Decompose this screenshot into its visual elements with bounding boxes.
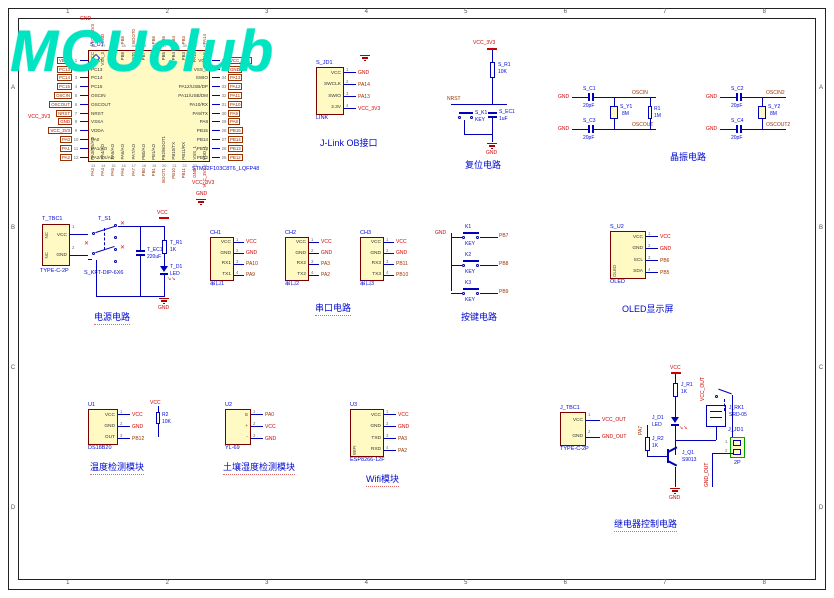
temp-body[interactable]: VCCGNDOUT xyxy=(88,409,118,445)
relay-coil-line xyxy=(710,411,722,412)
pin-name: VCC xyxy=(561,413,585,429)
net-label: VCC xyxy=(396,239,407,245)
wire xyxy=(451,104,507,105)
crystal-value: 8M xyxy=(622,111,629,117)
net-label: PB12 xyxy=(228,154,243,161)
wire xyxy=(212,130,220,131)
cap-value: 20pF xyxy=(583,103,594,109)
oled-body[interactable]: OLED VCCGNDSCLSDA xyxy=(610,231,646,279)
key-symbol[interactable] xyxy=(459,112,473,114)
pin-name: TX3 xyxy=(361,269,383,280)
key-row[interactable]: K1 KEY PB7 xyxy=(451,224,531,252)
gnd-symbol xyxy=(196,198,206,205)
wire xyxy=(234,275,244,276)
pin-number: 4 xyxy=(236,270,238,275)
wire xyxy=(594,129,656,130)
switch-lever xyxy=(95,226,114,233)
soil-title: 土壤湿度检测模块 xyxy=(223,460,295,475)
wire xyxy=(234,253,244,254)
cap-value: 20pF xyxy=(731,135,742,141)
net-label: PB12 xyxy=(132,436,144,442)
zone-label: 1 xyxy=(18,580,118,589)
resistor-designator: J_R1 xyxy=(681,382,693,388)
wire xyxy=(212,148,220,149)
wire xyxy=(675,374,676,383)
pin-number: 6 xyxy=(72,102,80,107)
wire xyxy=(118,414,130,415)
pin-name: OUT xyxy=(89,432,117,443)
wire xyxy=(251,438,263,439)
relay-title: 继电器控制电路 xyxy=(614,517,677,532)
net-label: VCC xyxy=(246,239,257,245)
resistor-value: 1K xyxy=(681,389,687,395)
pin-number: 3 xyxy=(386,433,388,438)
transistor-emitter xyxy=(668,460,678,466)
wire xyxy=(309,242,319,243)
pin-number: 1 xyxy=(311,237,313,242)
wire xyxy=(309,275,319,276)
net-label: PB5 xyxy=(660,270,669,276)
pin-name: PB10/TX xyxy=(172,142,176,160)
net-label: VCC xyxy=(265,424,276,430)
net-label: PA10 xyxy=(228,101,242,108)
resistor-symbol[interactable] xyxy=(645,437,650,451)
pin-name: PA4/AO xyxy=(101,144,105,160)
vcc-port: VCC_3V3 xyxy=(192,180,214,186)
net-label: VCC_3V3 xyxy=(48,127,72,134)
pin-name: PB0/AO xyxy=(142,144,146,160)
wire xyxy=(464,134,493,135)
cap-symbol[interactable] xyxy=(588,93,590,101)
net-label: PB8 xyxy=(499,261,508,267)
wire xyxy=(480,237,498,238)
crystal-value: 8M xyxy=(770,111,777,117)
pin-number: 2 xyxy=(120,421,122,426)
key-symbol xyxy=(463,260,479,262)
wire xyxy=(212,95,220,96)
gnd-port: GND xyxy=(196,191,207,197)
wire xyxy=(384,275,394,276)
resistor-symbol[interactable] xyxy=(156,412,160,424)
led-designator: T_D1 xyxy=(170,264,182,270)
cap-designator: S_C1 xyxy=(583,86,596,92)
net-label: GND xyxy=(246,250,257,256)
switch-contact xyxy=(114,248,117,251)
net-label: PA10 xyxy=(246,261,258,267)
resistor-symbol[interactable] xyxy=(673,383,678,397)
pin-name: PA7/AO xyxy=(132,144,136,160)
power-conn-body[interactable]: NCNC VCCGND xyxy=(42,224,70,266)
zone-label: 6 xyxy=(516,580,616,589)
temp-block: U1 VCCGNDOUT 1VCC 2GND 3PB12 DS18B20 VCC… xyxy=(88,402,144,451)
vcc-port: VCC xyxy=(670,365,681,371)
jlink-title: J-Link OB接口 xyxy=(320,136,378,149)
zone-label: B xyxy=(817,158,825,298)
resistor-value: 1K xyxy=(652,443,658,449)
pin-number: 3 xyxy=(648,255,650,260)
wifi-body[interactable]: WIFI VCCGNDTXDRXD xyxy=(350,409,384,457)
wire xyxy=(742,97,786,98)
pin-name: PB2/BOOT1 xyxy=(162,136,166,160)
led-symbol[interactable] xyxy=(160,266,168,272)
pin-number: 2 xyxy=(386,421,388,426)
pin-name: RX1 xyxy=(211,259,233,270)
pin-number: 31 xyxy=(220,102,228,107)
net-label: PB10 xyxy=(172,168,176,179)
key-designator: K1 xyxy=(465,224,471,230)
net-label: VCC_3V3 xyxy=(358,106,380,112)
pin-name: SDA xyxy=(617,266,645,278)
net-label: OSCOUT2 xyxy=(766,122,790,128)
wire xyxy=(712,453,733,454)
net-label: PA3 xyxy=(321,261,330,267)
power-block: T_TBC1 NCNC VCCGND 1 2 TYPE-C-2P T_S1 ✕ … xyxy=(36,210,201,325)
wire xyxy=(80,104,88,105)
net-label: OSCOUT xyxy=(49,101,72,108)
pin-number: 4 xyxy=(386,270,388,275)
wire xyxy=(712,453,713,487)
wire xyxy=(118,426,130,427)
connector-body[interactable]: VCCGNDRX3TX3 xyxy=(360,237,384,281)
resistor-designator: R1 xyxy=(654,106,660,112)
wire xyxy=(118,226,164,227)
wire xyxy=(384,414,396,415)
cap-symbol[interactable] xyxy=(588,125,590,133)
cap-symbol[interactable] xyxy=(736,125,738,133)
switch-lever xyxy=(95,246,114,253)
transistor-value: S9013 xyxy=(682,457,696,463)
connector-designator: CH1 xyxy=(210,230,258,237)
led-arrows-icon: ↘↘ xyxy=(679,426,687,431)
pin-name: PA8 xyxy=(108,118,208,127)
wire xyxy=(70,234,88,235)
pin-number: 1 xyxy=(236,237,238,242)
output-conn-pin xyxy=(733,449,741,455)
zone-label: D xyxy=(817,438,825,578)
pin-number: 3 xyxy=(346,91,348,96)
temp-designator: U1 xyxy=(88,402,144,409)
net-label: VCC xyxy=(321,239,332,245)
serial-ch2: CH2 VCCGNDRX2TX2 1VCC 2GND 3PA3 4PA2 串口2 xyxy=(285,230,332,287)
pin-name: PB1/AO xyxy=(152,144,156,160)
crystal-group-1: GND S_C1 20pF OSCIN GND S_C3 20pF OSCOUT… xyxy=(558,88,670,146)
wire xyxy=(384,253,394,254)
net-label: PB14 xyxy=(228,136,243,143)
vcc-symbol xyxy=(671,372,681,374)
pin-number: 1 xyxy=(120,409,122,414)
wire xyxy=(675,397,676,417)
pin-name: - xyxy=(226,432,250,443)
key-designator: K2 xyxy=(465,252,471,258)
wifi-side-label: WIFI xyxy=(352,411,357,455)
wire xyxy=(164,275,165,296)
gnd-port: GND xyxy=(158,305,169,311)
pin-name: VCC xyxy=(357,410,383,422)
resistor-value: 1M xyxy=(654,113,661,119)
connector-body[interactable]: VCCGNDRX1TX1 xyxy=(210,237,234,281)
cap-symbol[interactable] xyxy=(736,93,738,101)
output-conn-part: 2P xyxy=(734,460,741,467)
soil-part: YL-69 xyxy=(225,445,276,452)
wire xyxy=(720,97,736,98)
pin-name: + xyxy=(226,421,250,432)
wire xyxy=(480,265,498,266)
pin-number: 30 xyxy=(220,111,228,116)
wire xyxy=(140,226,141,250)
crystal-symbol[interactable] xyxy=(610,106,618,119)
wire xyxy=(492,134,493,142)
wire xyxy=(344,72,356,73)
net-label: PA2 xyxy=(60,154,72,161)
wire xyxy=(572,97,588,98)
net-label: PB11 xyxy=(396,261,408,267)
crystal-group-2: GND S_C2 20pF OSCIN2 GND S_C4 20pF OSCOU… xyxy=(706,88,792,146)
pin-number: 29 xyxy=(220,119,228,124)
pin-name: SWCLK xyxy=(317,79,343,91)
pin-name: VCC xyxy=(286,238,308,249)
wire xyxy=(158,424,159,437)
net-label: NRST xyxy=(56,110,72,117)
wire xyxy=(384,450,396,451)
zone-rows-left: ABCD xyxy=(9,18,17,578)
wire xyxy=(212,113,220,114)
net-label: GND xyxy=(265,436,276,442)
cap-symbol[interactable] xyxy=(488,112,497,114)
wire xyxy=(234,242,244,243)
pin-name: GND xyxy=(49,245,69,265)
cap-designator: T_EC1 xyxy=(147,247,163,253)
pin-number: 9 xyxy=(72,128,80,133)
resistor-value: 10K xyxy=(498,69,507,75)
relay-coil-line xyxy=(710,417,722,418)
power-title: 电源电路 xyxy=(94,310,130,325)
wire xyxy=(742,129,786,130)
wire xyxy=(88,259,92,260)
zone-label: 8 xyxy=(715,580,815,589)
net-label: PA7 xyxy=(638,415,644,435)
key-contact xyxy=(458,116,461,119)
net-label: PB15 xyxy=(228,127,243,134)
pin-number: 10 xyxy=(72,137,80,142)
pin-side-label: NC xyxy=(44,252,49,259)
pin-name: GND xyxy=(361,248,383,259)
wire xyxy=(647,456,667,457)
pin-number: 1 xyxy=(386,409,388,414)
oled-part: OLED xyxy=(610,279,671,286)
output-conn-designator: J_JD1 xyxy=(728,427,744,434)
relay-contact xyxy=(715,395,718,398)
resistor-designator: S_R1 xyxy=(498,62,511,68)
wifi-title: Wifi模块 xyxy=(366,472,399,487)
net-label: PB11 xyxy=(182,168,186,178)
zone-label: 8 xyxy=(715,9,815,18)
cap-value: 1uF xyxy=(499,116,508,122)
wire xyxy=(384,426,396,427)
wire xyxy=(384,264,394,265)
resistor-designator: J_R2 xyxy=(652,436,664,442)
vcc-symbol xyxy=(159,217,169,219)
net-label: GND xyxy=(660,246,671,252)
key-row[interactable]: K3 KEY PB9 xyxy=(451,280,531,308)
wire xyxy=(732,395,733,441)
wire xyxy=(344,108,356,109)
cap-designator: S_C3 xyxy=(583,118,596,124)
oled-side-label: OLED xyxy=(612,233,617,277)
pin-number: 1 xyxy=(386,237,388,242)
output-conn-pin xyxy=(733,440,741,446)
pin-name: VCC xyxy=(89,410,117,421)
gnd-port: GND xyxy=(706,126,717,132)
oled-block: S_U2 OLED VCCGNDSCLSDA 1VCC 2GND 3PB6 4P… xyxy=(610,224,671,285)
pin-number: 2 xyxy=(346,79,348,84)
wire xyxy=(80,113,88,114)
connector-part: TYPE-C-2P xyxy=(560,446,626,453)
wire xyxy=(212,157,220,158)
gnd-port: GND xyxy=(558,94,569,100)
net-label: PA2 xyxy=(398,448,407,454)
wifi-part: ESP8266-12F xyxy=(350,457,409,464)
switch-designator: T_S1 xyxy=(98,216,111,223)
wire xyxy=(80,157,88,158)
led-symbol[interactable] xyxy=(671,417,679,423)
key-symbol xyxy=(463,232,479,234)
wire xyxy=(309,253,319,254)
connector-body[interactable]: VCCGNDRX2TX2 xyxy=(285,237,309,281)
pin-number: 1 xyxy=(72,224,74,229)
wire xyxy=(492,50,493,62)
reset-title: 复位电路 xyxy=(465,158,501,171)
pin-number: 3 xyxy=(311,259,313,264)
net-label: VCC_OUT xyxy=(700,373,706,401)
serial-ch3: CH3 VCCGNDRX3TX3 1VCC 2GND 3PB11 4PB10 串… xyxy=(360,230,408,287)
transistor-designator: J_Q1 xyxy=(682,450,694,456)
wire xyxy=(158,406,159,412)
wire xyxy=(594,97,656,98)
net-label: PB9 xyxy=(499,289,508,295)
serial-title: 串口电路 xyxy=(315,301,351,316)
relay-coil[interactable] xyxy=(706,405,726,427)
net-label: OSCIN xyxy=(632,90,648,96)
wire xyxy=(675,467,676,487)
key-value: KEY xyxy=(475,117,485,123)
wire xyxy=(646,248,658,249)
net-label: GND xyxy=(396,250,407,256)
key-part: KEY xyxy=(465,297,475,303)
connector-body[interactable]: VCCGND xyxy=(560,412,586,446)
zone-columns-bottom: 12345678 xyxy=(18,580,814,589)
net-label: GND xyxy=(58,118,72,125)
relay-link xyxy=(724,399,725,411)
wire xyxy=(80,130,88,131)
no-erc-icon: ✕ xyxy=(84,241,89,247)
net-label: NRST xyxy=(447,96,461,102)
gnd-symbol xyxy=(670,487,680,494)
relay-input-conn: J_TBC1 VCCGND 1VCC_OUT 2GND_OUT TYPE-C-2… xyxy=(560,405,626,452)
net-label: GND xyxy=(321,250,332,256)
net-label: GND_OUT xyxy=(704,457,710,487)
pin-number: 1 xyxy=(648,231,650,236)
net-label: GND xyxy=(358,70,369,76)
key-contact xyxy=(462,236,465,239)
pin-name: VSS_1 xyxy=(193,146,197,160)
wire xyxy=(720,129,736,130)
power-conn-designator: T_TBC1 xyxy=(42,216,62,223)
cap-value: 220uF xyxy=(147,254,161,260)
pin-name: GND xyxy=(89,421,117,432)
cap-symbol[interactable] xyxy=(136,250,145,252)
key-contact xyxy=(462,292,465,295)
cap-value: 20pF xyxy=(583,135,594,141)
net-label: GND xyxy=(398,424,409,430)
jlink-body[interactable]: VCCSWCLKSWIO3.3V xyxy=(316,67,344,115)
zone-label: 5 xyxy=(416,580,516,589)
oled-title: OLED显示屏 xyxy=(622,302,674,315)
pin-number: 25 xyxy=(220,155,228,160)
resistor-value: 10K xyxy=(162,419,171,425)
wire xyxy=(70,255,88,256)
wire xyxy=(572,129,588,130)
net-label: BOOT1 xyxy=(162,168,166,183)
net-label: GND xyxy=(132,424,143,430)
pin-name: PB11/RX xyxy=(182,142,186,160)
resistor-value: 1K xyxy=(170,247,176,253)
connector-designator: CH3 xyxy=(360,230,408,237)
pin-name: RXD xyxy=(357,444,383,456)
mcu-bottom-names: PA3/RX/AO PA4/AO PA5/AO PA6/AO PA7/AO PB… xyxy=(88,130,210,160)
jlink-part: LINK xyxy=(316,115,380,122)
connector-designator: CH2 xyxy=(285,230,332,237)
soil-body[interactable]: S+- xyxy=(225,409,251,445)
wire xyxy=(212,121,220,122)
net-label: VCC xyxy=(398,412,409,418)
resistor-symbol[interactable] xyxy=(648,106,652,119)
serial-ch1: CH1 VCCGNDRX1TX1 1VCC 2GND 3PA10 4PA9 串口… xyxy=(210,230,258,287)
wire xyxy=(451,265,462,266)
key-symbol xyxy=(463,288,479,290)
zone-label: 7 xyxy=(615,9,715,18)
pin-name: VCC xyxy=(49,225,69,245)
pin-name: RX3 xyxy=(361,259,383,270)
crystal-symbol[interactable] xyxy=(758,106,766,119)
pin-name: PA10/RX xyxy=(108,100,208,109)
net-label: PA7 xyxy=(132,168,136,176)
wire xyxy=(164,254,165,266)
zone-label: B xyxy=(9,158,17,298)
wifi-block: U3 WIFI VCCGNDTXDRXD 1VCC 2GND 3PA3 4PA2… xyxy=(350,402,409,463)
wire xyxy=(492,118,493,134)
key-row[interactable]: K2 KEY PB8 xyxy=(451,252,531,280)
pin-number: 3 xyxy=(236,259,238,264)
pin-number: 2 xyxy=(648,243,650,248)
pin-name: GND xyxy=(211,248,233,259)
resistor-symbol[interactable] xyxy=(162,240,167,254)
pin-number: 1 xyxy=(346,67,348,72)
pin-name: TXD xyxy=(357,433,383,445)
resistor-symbol[interactable] xyxy=(490,62,495,78)
cap-designator: S_C2 xyxy=(731,86,744,92)
net-label: OSCIN2 xyxy=(766,90,785,96)
reset-block: VCC_3V3 S_R1 10K NRST S_K1 KEY S_EC1 1uF… xyxy=(445,40,535,170)
net-label: PB1 xyxy=(152,168,156,176)
gnd-port: GND xyxy=(435,230,446,236)
gnd-port: GND xyxy=(558,126,569,132)
net-label: PB10 xyxy=(396,272,408,278)
pin-name: GND xyxy=(357,421,383,433)
gnd-symbol xyxy=(159,297,169,304)
net-label: PA9 xyxy=(246,272,255,278)
soil-block: U2 S+- 1PA0 2VCC 3GND YL-69 土壤湿度检测模块 xyxy=(225,402,276,451)
zone-label: 2 xyxy=(118,580,218,589)
